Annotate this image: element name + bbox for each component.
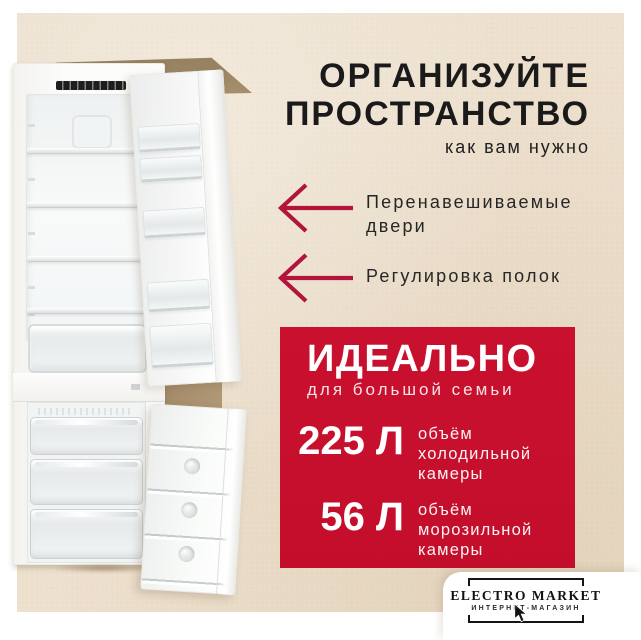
fridge-vent-box [72, 115, 112, 149]
freezer-vent-strip [38, 408, 134, 415]
door-bin [139, 155, 202, 183]
door-bin [149, 323, 213, 369]
mouse-cursor-icon [513, 603, 529, 624]
feature-doors-label: Перенавешиваемые двери [366, 190, 626, 238]
freezer-door-dimple [184, 458, 201, 475]
spec-fridge-volume: 225 Л объём холодильной камеры [296, 421, 566, 484]
freezer-door-dimple [178, 546, 195, 563]
door-hinge-dot [238, 417, 241, 420]
highlight-panel: ИДЕАЛЬНО для большой семьи 225 Л объём х… [280, 327, 575, 568]
logo-name: ELECTRO MARKET [441, 588, 611, 604]
divider-latch [131, 384, 140, 390]
fridge-shelf [27, 256, 144, 262]
feature-shelves-label: Регулировка полок [366, 264, 626, 288]
fridge-door-open [129, 69, 241, 386]
fridge-shelf [27, 308, 144, 314]
headline-subtitle: как вам нужно [285, 137, 590, 158]
fridge-control-panel [56, 81, 126, 90]
door-bin [147, 279, 211, 313]
spec-freezer-volume: 56 Л объём морозильной камеры [296, 497, 566, 560]
freezer-door-open [140, 404, 246, 596]
spec-value: 56 Л [296, 497, 404, 560]
spec-description: объём морозильной камеры [418, 497, 564, 560]
crisper-drawer [28, 324, 147, 373]
fridge-shelf [27, 148, 144, 154]
spec-description: объём холодильной камеры [418, 421, 564, 484]
compartment-divider [13, 373, 165, 402]
door-hinge-dot [216, 75, 219, 78]
left-arrow-icon [276, 250, 356, 306]
freezer-door-dimple [181, 502, 198, 519]
freezer-drawer [30, 417, 143, 455]
freezer-drawer [30, 459, 143, 505]
logo-bracket-top [468, 578, 584, 586]
headline: ОРГАНИЗУЙТЕ ПРОСТРАНСТВО как вам нужно [285, 57, 590, 158]
left-arrow-icon [276, 180, 356, 236]
highlight-subtitle: для большой семьи [307, 379, 515, 401]
door-hinge-dot [216, 83, 219, 86]
fridge-side-ribs [28, 100, 35, 336]
highlight-title: ИДЕАЛЬНО [307, 339, 538, 379]
door-bin [142, 207, 206, 239]
feature-doors [276, 180, 356, 236]
headline-line2: ПРОСТРАНСТВО [285, 95, 590, 133]
door-hinge-dot [228, 582, 231, 585]
fridge-shelf [27, 202, 144, 208]
spec-value: 225 Л [296, 421, 404, 484]
feature-shelves [276, 250, 356, 306]
door-bin [137, 123, 200, 153]
headline-line1: ОРГАНИЗУЙТЕ [285, 57, 590, 95]
freezer-drawer [30, 509, 143, 559]
